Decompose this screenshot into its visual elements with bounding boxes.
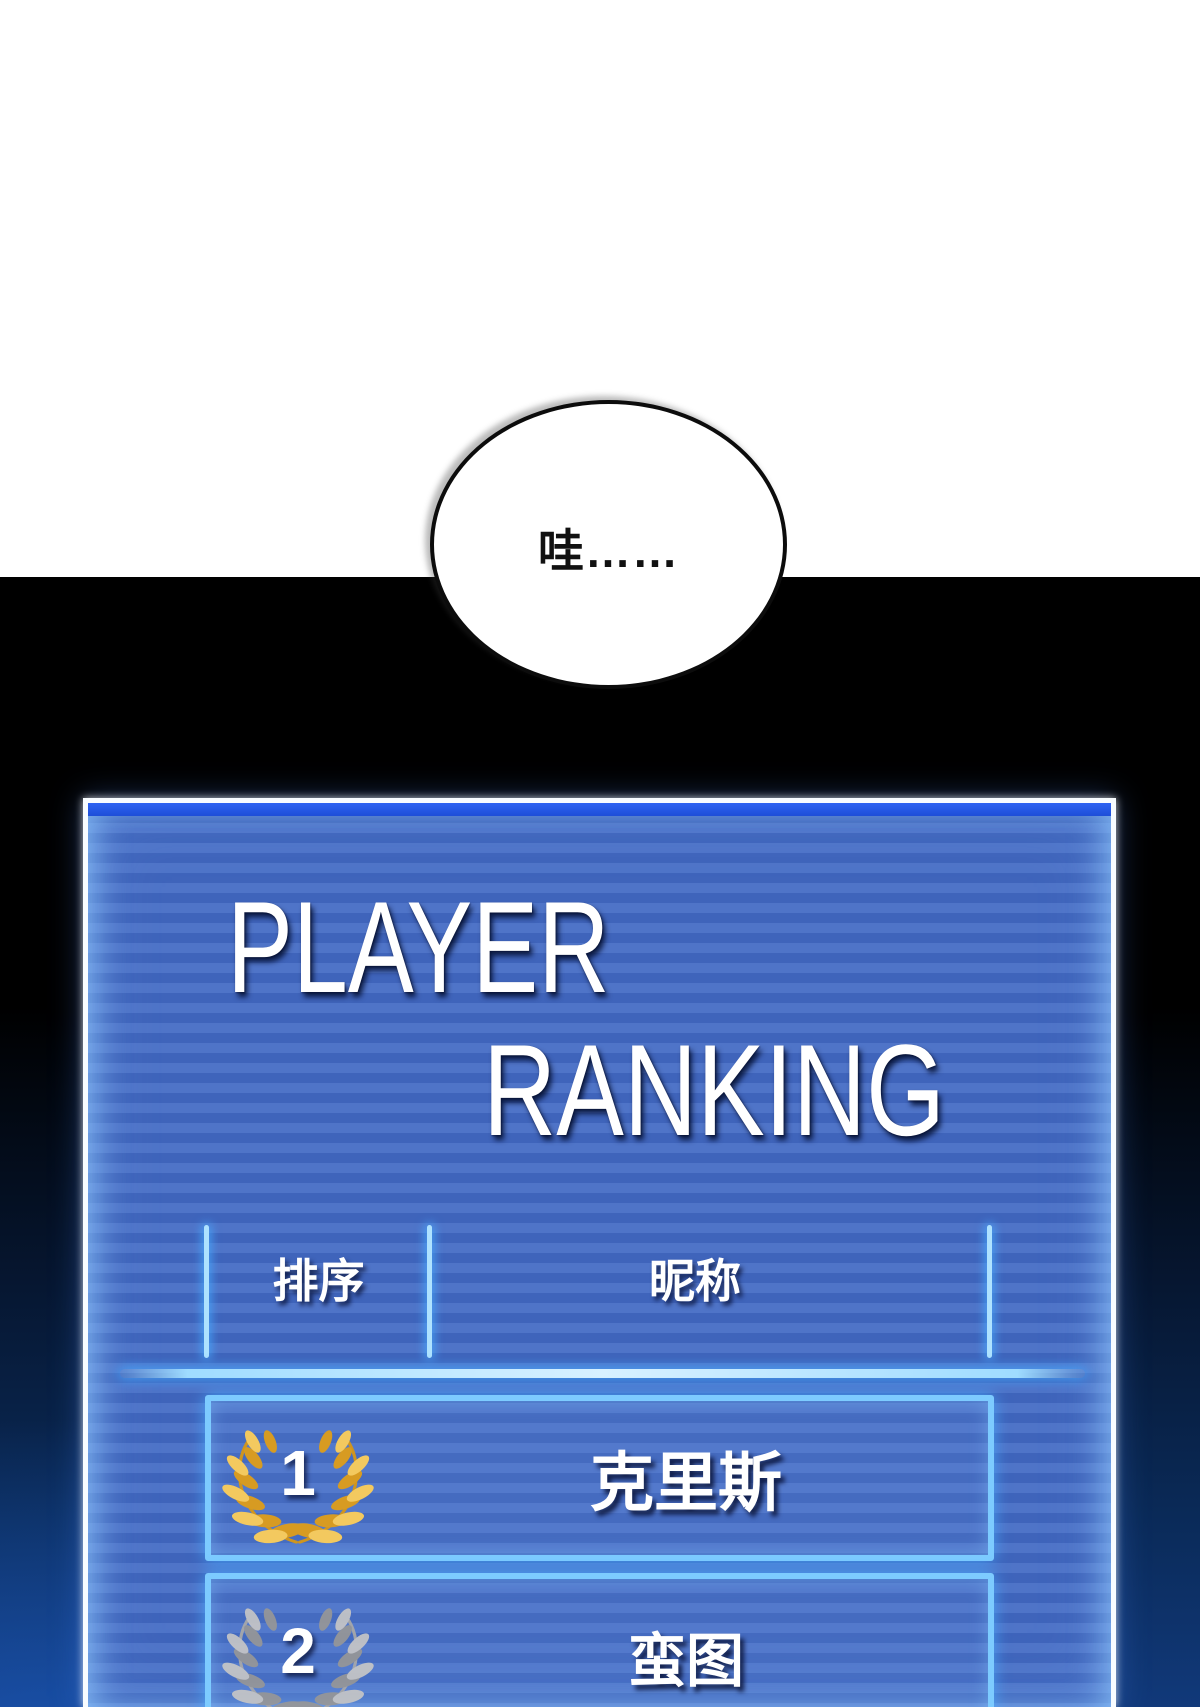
rank-column-label: 排序	[207, 1243, 430, 1313]
panel-title-line2: RANKING	[483, 1025, 945, 1155]
nickname-column-label: 昵称	[430, 1243, 990, 1313]
player-ranking-panel: PLAYER RANKING 排序 昵称 1 克里斯 2 蛮图	[83, 798, 1116, 1707]
panel-top-bar	[88, 803, 1111, 816]
ranking-row-1[interactable]: 1 克里斯	[205, 1395, 994, 1561]
player-nickname: 蛮图	[429, 1579, 988, 1707]
rank-number: 2	[219, 1584, 377, 1707]
speech-bubble-text: 哇……	[538, 509, 679, 581]
player-nickname: 克里斯	[429, 1401, 988, 1555]
rank-number: 1	[219, 1406, 377, 1554]
header-separator-line	[120, 1369, 1085, 1378]
speech-bubble: 哇……	[430, 400, 787, 689]
ranking-row-2[interactable]: 2 蛮图	[205, 1573, 994, 1707]
panel-title-line1: PLAYER	[227, 882, 610, 1012]
